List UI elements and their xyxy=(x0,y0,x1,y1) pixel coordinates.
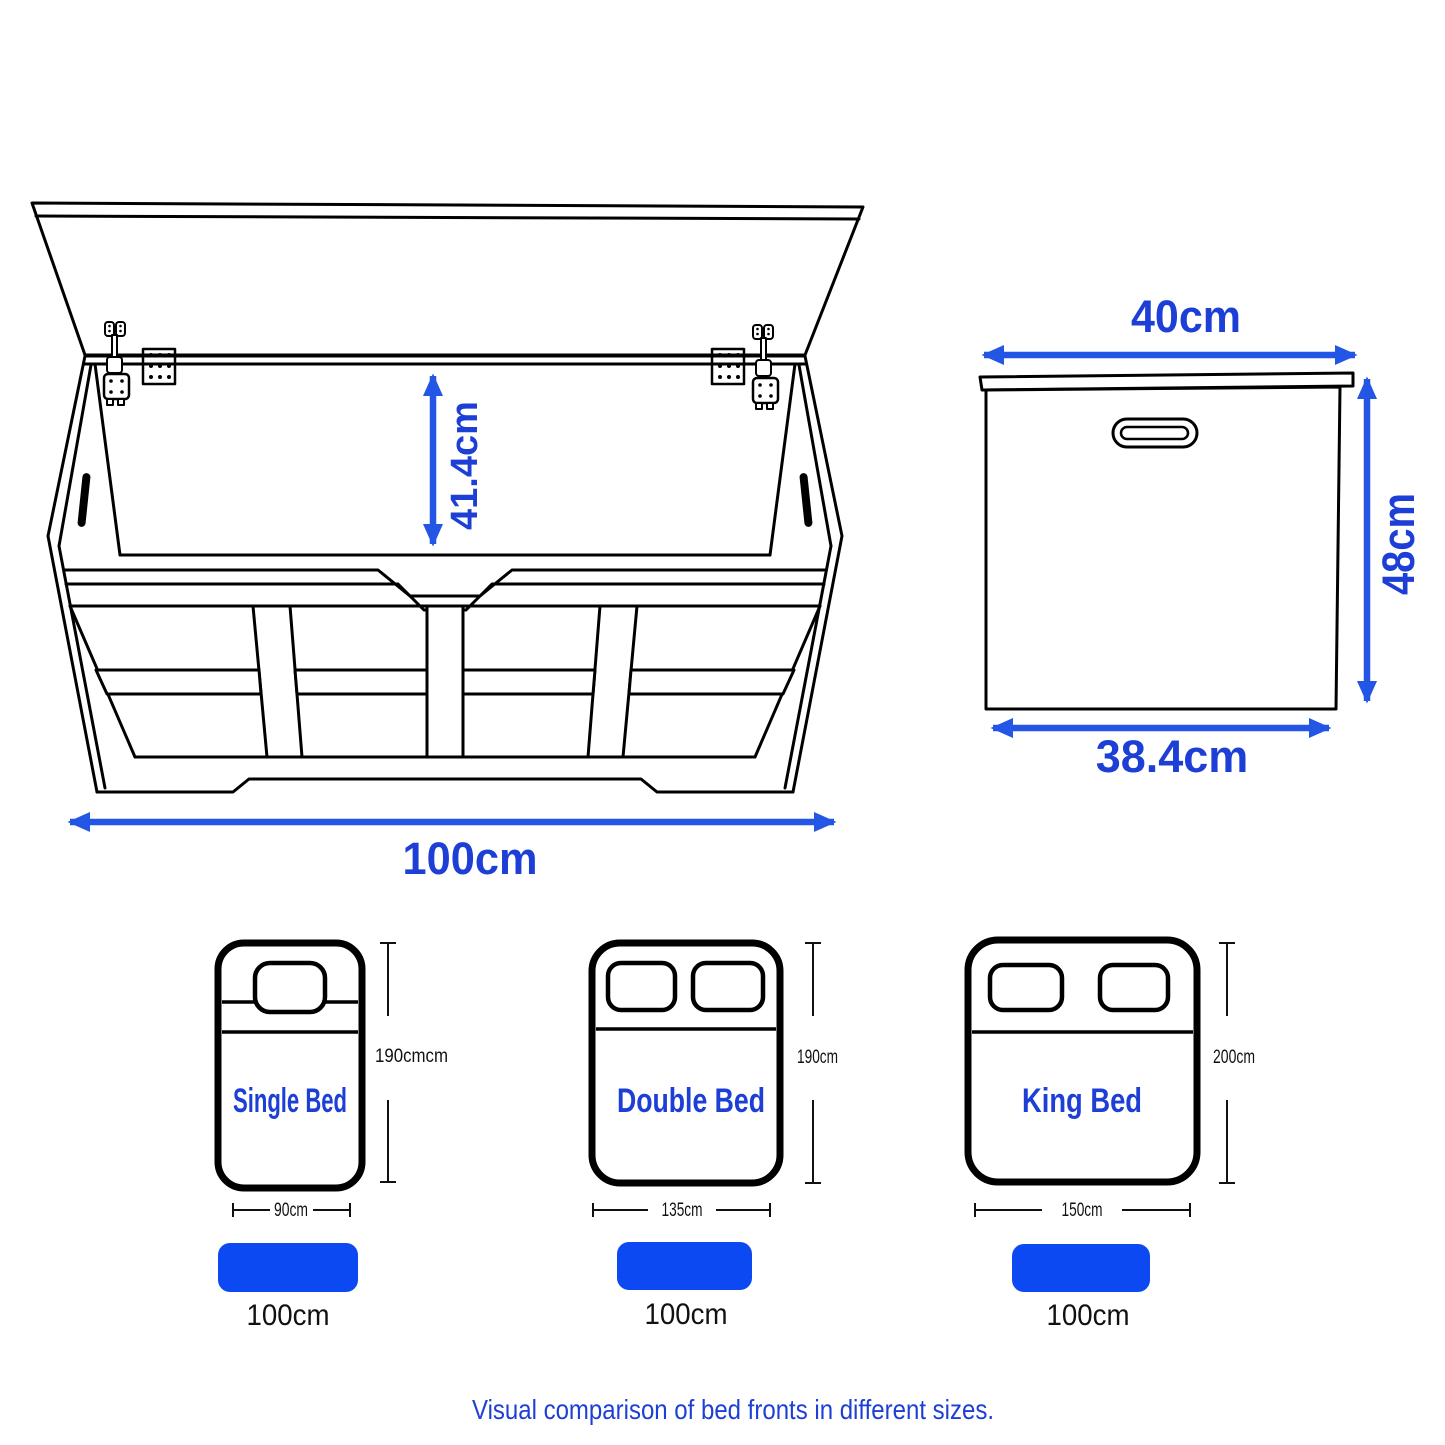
pillow xyxy=(990,965,1062,1010)
length-label: 200cm xyxy=(1213,1047,1255,1068)
bench-width-bar xyxy=(218,1243,358,1292)
right-wall xyxy=(785,356,842,792)
front-rim xyxy=(64,570,826,610)
bench-width-bar xyxy=(617,1242,752,1290)
bed-king: King Bed 200cm 150cm 100cm xyxy=(968,940,1255,1332)
front-rail xyxy=(629,670,794,694)
width-label: 90cm xyxy=(274,1200,308,1221)
length-label: 190cmcm xyxy=(375,1046,448,1067)
left-wall xyxy=(48,356,105,792)
pillow xyxy=(608,963,675,1010)
hinge-line xyxy=(85,356,805,364)
pillow xyxy=(1100,965,1168,1010)
length-label: 190cm xyxy=(797,1047,838,1068)
bench-width-bar xyxy=(1012,1244,1150,1292)
bottom-width-label: 38.4cm xyxy=(1096,731,1249,782)
bed-name-label: Single Bed xyxy=(233,1082,347,1120)
diagram-canvas: 41.4cm 100cm 40cm 48cm 38.4cm Single Bed… xyxy=(0,0,1445,1445)
front-width-label: 100cm xyxy=(403,833,538,884)
dimension-diagram: 41.4cm 100cm 40cm 48cm 38.4cm Single Bed… xyxy=(0,0,1445,1445)
pillow xyxy=(255,963,325,1012)
pillow xyxy=(693,963,763,1010)
bed-name-label: Double Bed xyxy=(617,1082,765,1120)
bed-name-label: King Bed xyxy=(1022,1082,1142,1120)
bed-double: Double Bed 190cm 135cm 100cm xyxy=(592,943,838,1331)
bench-width-label: 100cm xyxy=(247,1299,330,1332)
side-handle-slot-left xyxy=(77,473,91,528)
side-handle-slot-right xyxy=(799,473,813,528)
width-label: 150cm xyxy=(1062,1200,1103,1221)
front-rail xyxy=(96,670,261,694)
width-label: 135cm xyxy=(662,1200,703,1221)
storage-box-side-view xyxy=(980,373,1353,709)
bed-single: Single Bed 190cmcm 90cm 100cm xyxy=(218,943,448,1332)
top-width-label: 40cm xyxy=(1131,291,1241,342)
front-stile xyxy=(427,606,463,757)
inner-height-label: 41.4cm xyxy=(444,401,486,530)
front-rail xyxy=(463,670,595,694)
caption: Visual comparison of bed fronts in diffe… xyxy=(472,1394,994,1425)
front-frame xyxy=(70,606,820,792)
base-profile xyxy=(97,779,793,792)
side-height-label: 48cm xyxy=(1373,493,1424,595)
bench-width-label: 100cm xyxy=(645,1298,728,1331)
front-rail xyxy=(295,670,427,694)
open-lid xyxy=(32,203,863,355)
bench-width-label: 100cm xyxy=(1047,1299,1130,1332)
side-body xyxy=(986,387,1340,709)
